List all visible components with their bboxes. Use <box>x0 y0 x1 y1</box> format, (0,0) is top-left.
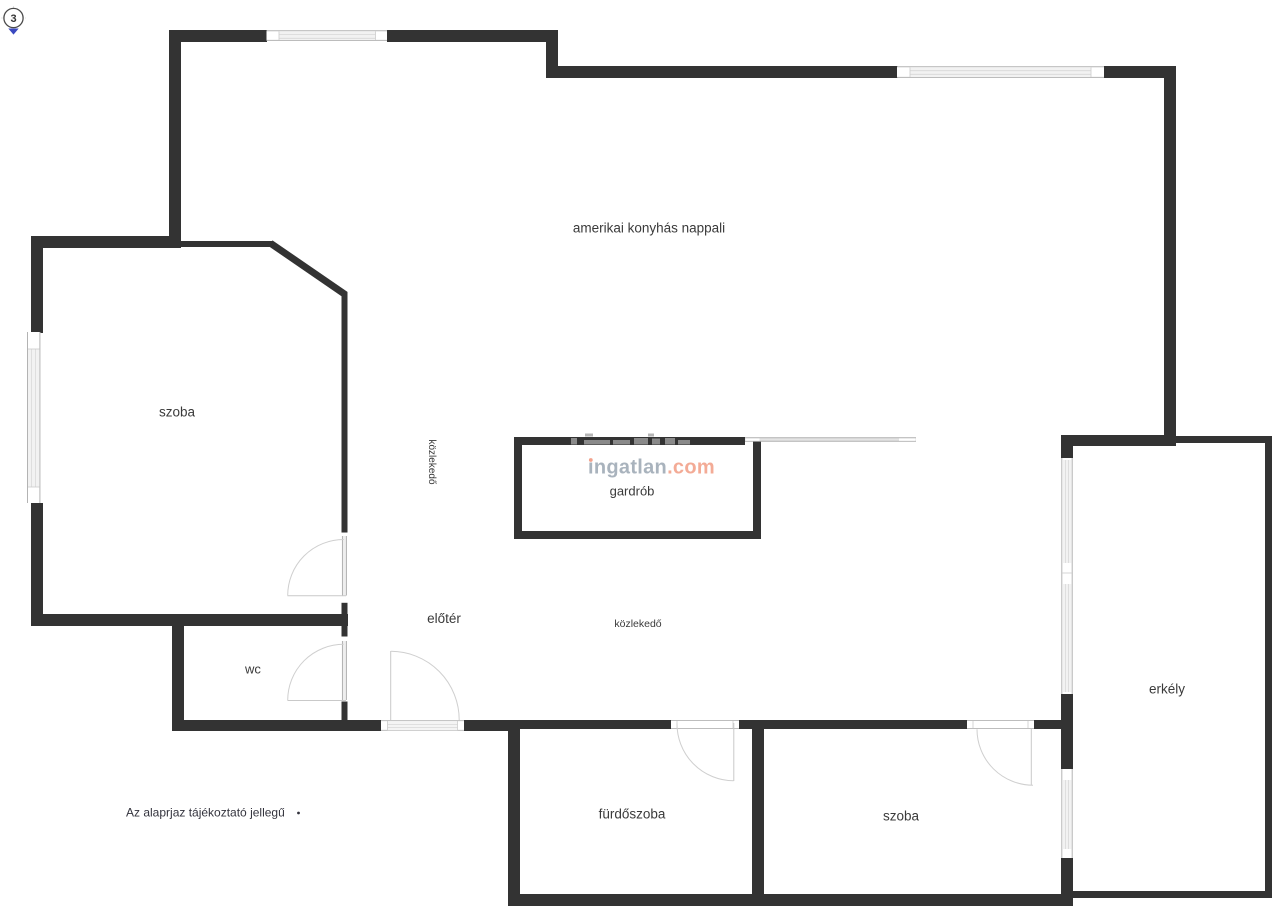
svg-text:wc: wc <box>244 662 261 677</box>
svg-text:erkély: erkély <box>1149 682 1185 697</box>
svg-text:3: 3 <box>10 13 16 25</box>
svg-text:közlekedő: közlekedő <box>614 618 661 630</box>
svg-text:közlekedő: közlekedő <box>426 439 437 484</box>
svg-text:ingatlan.com: ingatlan.com <box>588 457 715 479</box>
svg-text:gardrób: gardrób <box>610 484 655 499</box>
svg-text:amerikai konyhás nappali: amerikai konyhás nappali <box>573 221 725 236</box>
svg-text:előtér: előtér <box>427 611 461 626</box>
svg-text:szoba: szoba <box>883 809 920 824</box>
svg-text:szoba: szoba <box>159 405 196 420</box>
svg-text:fürdőszoba: fürdőszoba <box>599 807 666 822</box>
svg-text:Az alaprjaz tájékoztató jelleg: Az alaprjaz tájékoztató jellegű <box>126 806 285 820</box>
